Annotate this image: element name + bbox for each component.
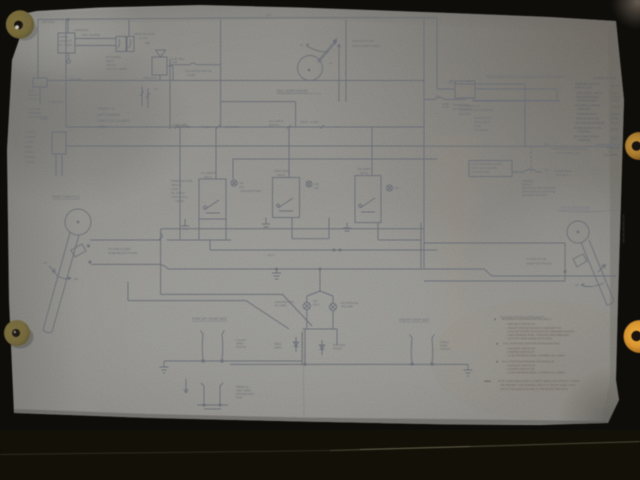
svg-text:36/12/28 UPDATED SHT: 36/12/28 UPDATED SHT [622,214,626,243]
